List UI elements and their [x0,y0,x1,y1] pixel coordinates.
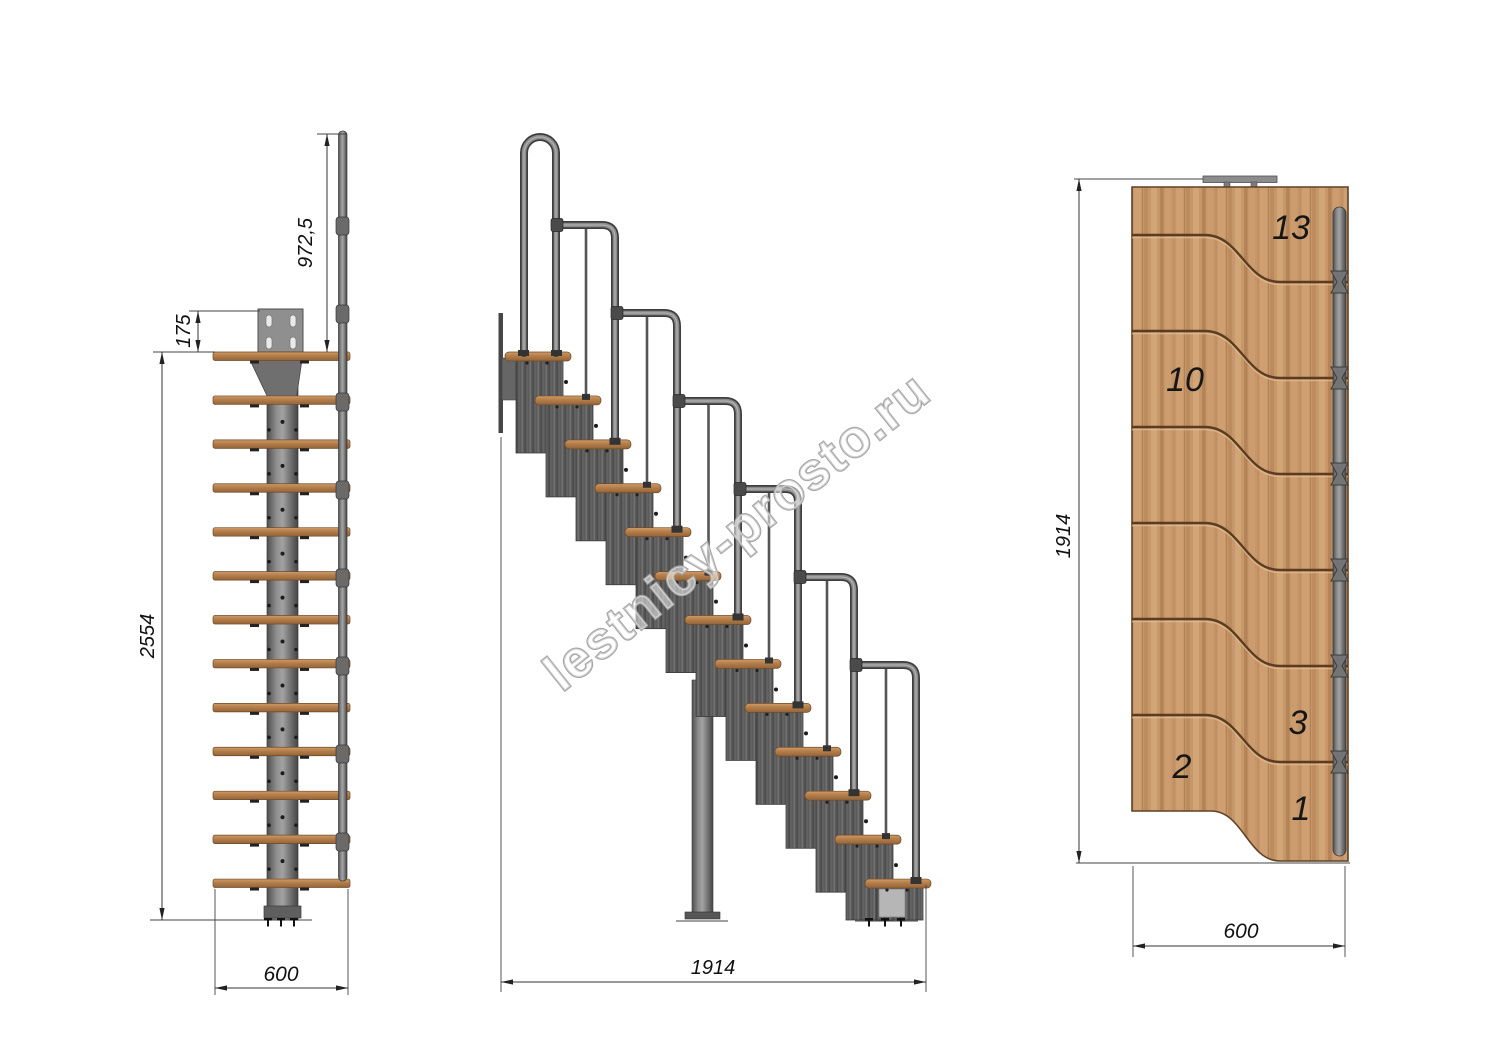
anchor-bolt [293,918,295,927]
rail-foot [733,614,744,621]
tread-bolt [545,361,548,364]
column-bolt [281,552,285,556]
dim-arrow [195,340,200,352]
module-bolt [654,512,658,516]
front-handrail-post [339,131,348,881]
rail-foot [551,350,562,356]
baluster-foot [643,482,651,488]
module-bolt [744,644,748,648]
column-bolt [294,472,298,476]
tread-bolt [755,669,758,672]
tread-clamp [250,492,259,495]
tread-bolt [605,449,608,452]
baluster-foot [882,833,890,839]
front-tread [213,352,350,361]
baluster-foot [765,658,773,664]
tread-clamp [250,624,259,627]
plan-view: 13 10 3 2 1 1914 600 [1053,176,1350,957]
tread-clamp [300,844,309,847]
tread-bolt [795,757,798,760]
side-tread [565,440,631,449]
tread-clamp [250,712,259,715]
module-bolt [594,424,598,428]
column-bolt [281,464,285,468]
drawing-canvas: 972,5 175 2554 600 1914 [0,0,1500,1061]
tread-bolt [575,405,578,408]
front-anchor-bolts [264,918,298,927]
tread-bolt [645,537,648,540]
step-label-1: 1 [1292,790,1311,828]
tread-bolt [555,405,558,408]
tread-clamp [250,536,259,539]
tread-clamp [300,888,309,891]
column-bolt [267,823,271,827]
handrail-connector [336,745,349,763]
column-bolt [267,472,271,476]
tread-bolt [525,361,528,364]
dim-arrow [159,908,164,920]
column-bolt [267,428,271,432]
handrail-connector [336,217,349,235]
dim-arrow [324,340,329,352]
column-bolt [294,428,298,432]
tread-clamp [250,800,259,803]
step-label-3: 3 [1289,704,1308,742]
tread-clamp [300,800,309,803]
baluster-foot [582,394,590,400]
column-bolt [294,516,298,520]
handrail-loop [524,137,556,353]
side-bottom-module-face [879,889,905,917]
column-bolt [267,648,271,652]
plate-slot-hole [290,337,296,349]
dim-side-length: 1914 [691,957,736,979]
side-tread [775,747,841,756]
plan-mounting-plate [1203,176,1277,183]
tread-clamp [300,404,309,407]
module-bolt [804,731,808,735]
column-bolt [281,815,285,819]
tread-clamp [250,668,259,671]
front-tread [213,791,350,800]
tread-bolt [885,888,888,891]
front-top-bracket [250,360,302,400]
tread-clamp [250,756,259,759]
dim-plan-length: 1914 [1053,514,1075,559]
handrail-loop [524,137,556,353]
plate-slot-hole [266,315,272,327]
module-bolt [714,600,718,604]
column-bolt [281,859,285,863]
tread-bolt [815,757,818,760]
column-bolt [267,779,271,783]
module-bolt [834,775,838,779]
module-bolt [864,819,868,823]
dim-front-width: 600 [263,963,298,986]
anchor-bolt [884,918,886,927]
handrail-connector [336,657,349,675]
tread-clamp [300,448,309,451]
side-tread [805,791,871,800]
dim-arrow [1076,851,1081,863]
column-bolt [281,596,285,600]
tread-clamp [250,448,259,451]
anchor-bolt [868,918,870,927]
dim-total-height: 2554 [137,614,159,660]
dim-arrow [1333,943,1345,948]
dim-plan-width: 600 [1223,920,1258,943]
handrail-connector [336,305,349,323]
column-bolt [294,867,298,871]
column-bolt [281,508,285,512]
tread-bolt [705,625,708,628]
rail-foot [610,438,621,445]
tread-clamp [300,536,309,539]
tread-bolt [905,888,908,891]
front-tread [213,659,350,668]
tread-clamp [300,361,309,364]
dim-arrow [1133,943,1145,948]
side-anchor-bolts [865,918,905,927]
tread-bolt [665,537,668,540]
side-tread [595,484,661,493]
anchor-bolt [267,918,269,927]
front-tread [213,835,350,844]
dim-arrow [195,311,200,323]
tread-bolt [585,449,588,452]
dim-arrow [324,134,329,146]
column-bolt [267,516,271,520]
front-tread [213,484,350,493]
front-tread [213,396,350,405]
front-tread [213,879,350,888]
column-bolt [267,560,271,564]
dim-top-offset: 175 [173,313,195,347]
tread-clamp [300,580,309,583]
column-bolt [294,560,298,564]
tread-bolt [855,845,858,848]
column-bolt [267,736,271,740]
tread-clamp [300,756,309,759]
step-label-10: 10 [1166,361,1204,399]
dim-handrail-height: 972,5 [295,217,317,268]
column-bolt [294,779,298,783]
tread-bolt [765,713,768,716]
dim-arrow [215,985,227,990]
tread-clamp [250,580,259,583]
anchor-bolt [900,918,902,927]
front-tread [213,528,350,537]
module-bolt [774,687,778,691]
rail-foot [518,350,529,356]
rail-clamp [673,395,685,408]
handrail-connector [336,833,349,851]
column-bolt [294,692,298,696]
plate-slot-hole [290,315,296,327]
step-label-13: 13 [1272,209,1310,247]
front-tread [213,616,350,625]
front-tread [213,747,350,756]
side-tread [835,835,901,844]
rail-clamp [611,307,623,320]
front-view: 972,5 175 2554 600 [137,131,350,995]
handrail-connector [336,481,349,499]
column-bolt [294,604,298,608]
tread-bolt [875,845,878,848]
dim-arrow [336,985,348,990]
column-bolt [294,648,298,652]
tread-bolt [725,625,728,628]
module-bolt [564,380,568,384]
handrail-connector [336,569,349,587]
plate-slot-hole [266,337,272,349]
module-bolt [894,863,898,867]
tread-bolt [615,493,618,496]
side-support-base [685,912,720,919]
dim-arrow [1076,179,1081,191]
tread-clamp [300,492,309,495]
tread-bolt [825,801,828,804]
column-bolt [267,692,271,696]
tread-bolt [735,669,738,672]
front-tread [213,703,350,712]
rail-clamp [794,571,806,584]
module-bolt [624,468,628,472]
rail-clamp [850,659,862,672]
column-bolt [267,867,271,871]
column-bolt [267,604,271,608]
handrail-loop [524,137,556,353]
rail-foot [793,701,804,708]
tread-clamp [300,668,309,671]
column-bolt [294,736,298,740]
column-bolt [281,640,285,644]
tread-clamp [250,888,259,891]
rail-clamp [551,219,563,232]
tread-clamp [250,844,259,847]
column-bolt [281,771,285,775]
tread-clamp [250,404,259,407]
stair-technical-drawing: 972,5 175 2554 600 1914 [0,0,1500,1061]
dim-arrow [501,979,513,984]
side-tread [535,396,601,405]
front-tread [213,572,350,581]
front-column-base [264,906,301,918]
tread-clamp [250,361,259,364]
column-bolt [294,823,298,827]
tread-bolt [785,713,788,716]
tread-bolt [845,801,848,804]
handrail-connector [336,393,349,411]
column-bolt [281,727,285,731]
tread-bolt [635,493,638,496]
dim-arrow [159,352,164,364]
rail-foot [672,526,683,533]
front-tread [213,440,350,449]
baluster-foot [823,745,831,751]
column-bolt [281,683,285,687]
anchor-bolt [280,918,282,927]
dim-arrow [914,979,926,984]
column-bolt [281,420,285,424]
rail-foot [911,877,922,884]
step-label-2: 2 [1172,748,1192,786]
rail-foot [849,789,860,796]
tread-clamp [300,624,309,627]
tread-clamp [300,712,309,715]
